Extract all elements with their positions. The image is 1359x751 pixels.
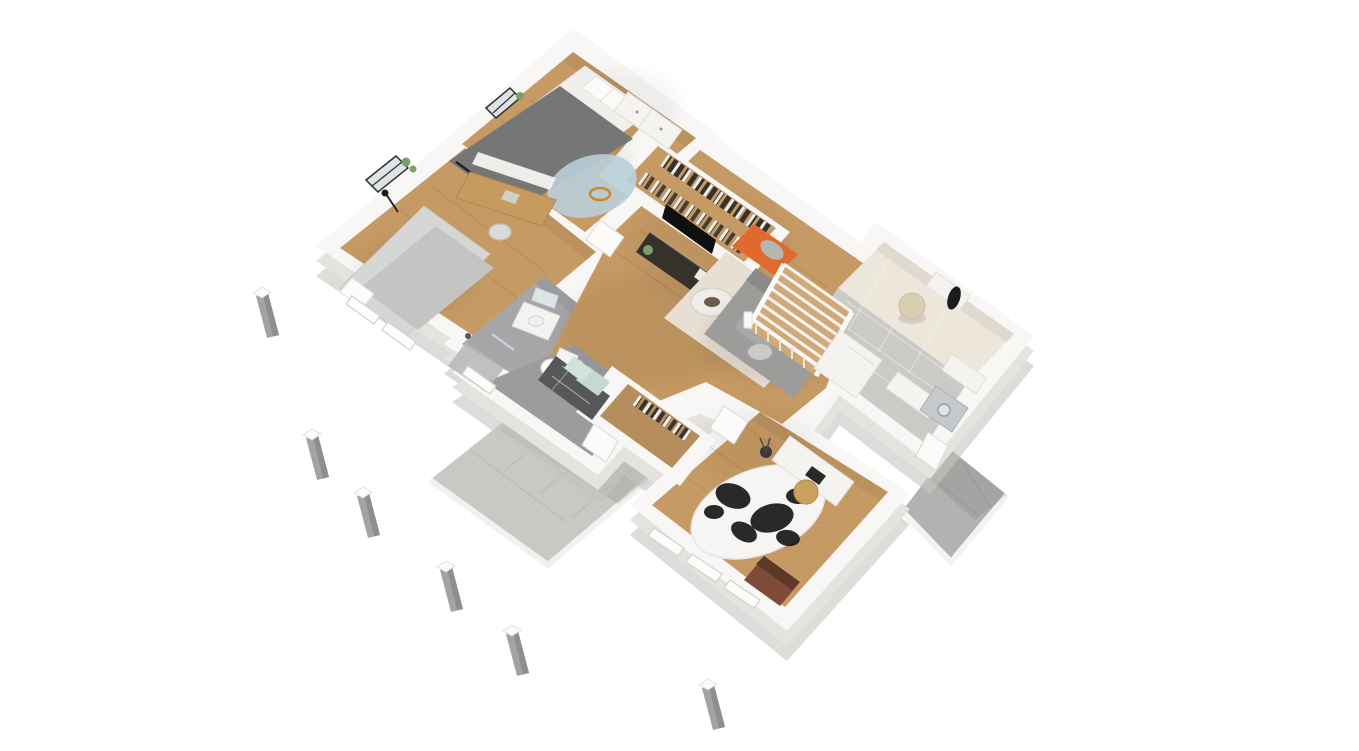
window-plant-icon xyxy=(516,92,524,100)
pouf xyxy=(898,293,926,324)
pile xyxy=(354,487,380,538)
pile xyxy=(503,625,529,676)
floorplan-svg xyxy=(0,0,1359,751)
newel-post xyxy=(744,312,752,328)
office-chair xyxy=(794,480,818,504)
pile xyxy=(699,679,725,730)
table-tray xyxy=(704,297,720,307)
window-plant-icon xyxy=(410,166,417,173)
pile xyxy=(303,429,329,480)
throw-pillow xyxy=(748,344,772,360)
shower-head-icon xyxy=(465,333,471,339)
window-plant-icon xyxy=(402,158,411,167)
pile xyxy=(253,287,279,338)
floorplan-render xyxy=(0,0,1359,751)
washer-door xyxy=(938,404,950,416)
plant-icon xyxy=(643,245,653,255)
desk-chair xyxy=(489,224,511,240)
sink-basin xyxy=(528,316,544,326)
pile xyxy=(437,561,463,612)
